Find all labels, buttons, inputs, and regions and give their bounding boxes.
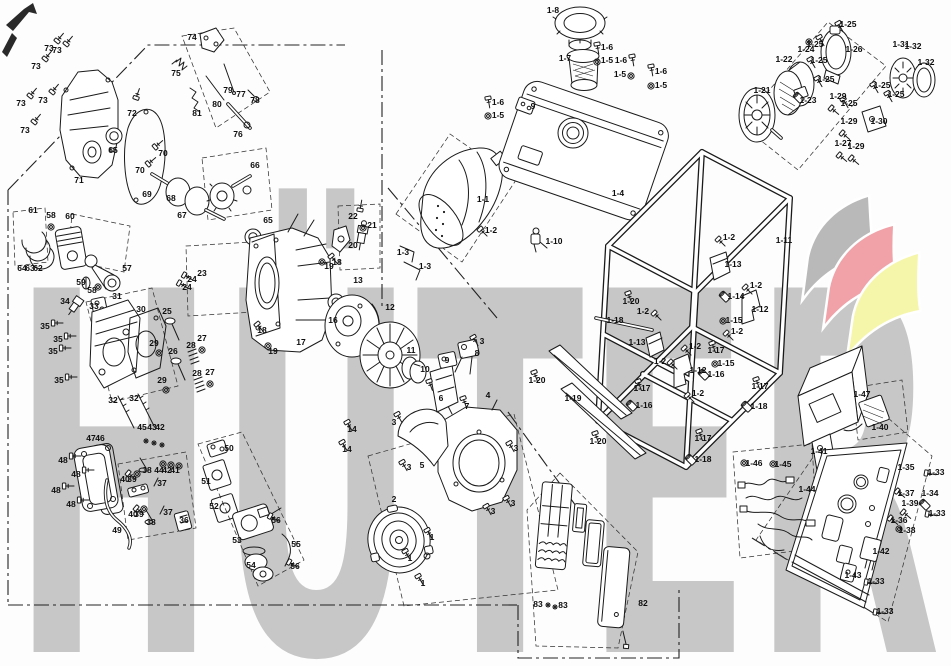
bolt-glyph <box>145 155 158 167</box>
part-label: 78 <box>250 95 260 105</box>
part-label: 1-5 <box>601 55 614 65</box>
bolt-glyph <box>836 152 849 164</box>
part-label: 73 <box>31 61 41 71</box>
bolt-glyph <box>31 112 43 125</box>
part-label: 3 <box>511 498 516 508</box>
part-label: 1-32 <box>917 57 934 67</box>
part-label: 1-42 <box>872 546 889 556</box>
part-label: 1-26 <box>845 44 862 54</box>
part-label: 59 <box>76 277 86 287</box>
part-label: 3 <box>480 336 485 346</box>
part-label: 35 <box>53 334 63 344</box>
part-label: 73 <box>20 125 30 135</box>
part-label: 8 <box>475 348 480 358</box>
part-label: 38 <box>142 465 152 475</box>
alternator-stator <box>774 62 814 115</box>
part-label: 1-30 <box>870 116 887 126</box>
part-label: 1-19 <box>564 393 581 403</box>
part-label: 79 <box>223 85 233 95</box>
part-label: 1-25 <box>806 39 823 49</box>
part-label: 54 <box>246 560 256 570</box>
part-label: 1-2 <box>689 341 702 351</box>
part-label: 1-25 <box>810 55 827 65</box>
part-label: 1-3 <box>419 261 432 271</box>
part-label: 48 <box>51 485 61 495</box>
part-label: 70 <box>158 148 168 158</box>
part-label: 11 <box>407 345 416 355</box>
part-label: 60 <box>65 211 75 221</box>
part-label: 1-32 <box>904 41 921 51</box>
part-label: 41 <box>170 465 180 475</box>
bolt-glyph <box>629 54 637 66</box>
part-label: 77 <box>236 89 246 99</box>
part-label: 42 <box>155 422 165 432</box>
part-label: 1-16 <box>707 369 724 379</box>
part-label: 1-2 <box>637 306 650 316</box>
part-label: 38 <box>146 517 156 527</box>
part-label: 83 <box>533 599 543 609</box>
bolt-glyph <box>828 105 841 117</box>
end-grille <box>913 63 935 97</box>
part-label: 6 <box>439 393 444 403</box>
part-label: 1-22 <box>775 54 792 64</box>
part-label: 1-45 <box>774 459 791 469</box>
part-label: 70 <box>135 165 145 175</box>
part-label: 1-5 <box>614 69 627 79</box>
part-label: 56 <box>290 561 300 571</box>
part-label: 34 <box>60 296 70 306</box>
filler-neck <box>567 50 599 91</box>
part-label: 1-38 <box>898 525 915 535</box>
part-label: 20 <box>348 240 358 250</box>
part-label: 46 <box>95 433 105 443</box>
part-label: 1-33 <box>928 508 945 518</box>
part-label: 1-6 <box>601 42 614 52</box>
float-bowl <box>253 567 273 581</box>
part-label: 1-5 <box>492 110 505 120</box>
part-label: 25 <box>162 306 172 316</box>
part-label: 1-36 <box>890 515 907 525</box>
part-label: 1-33 <box>876 606 893 616</box>
part-label: 16 <box>328 315 338 325</box>
part-label: 1-6 <box>492 97 505 107</box>
part-label: 3 <box>491 506 496 516</box>
part-label: 7 <box>465 401 470 411</box>
part-label: 28 <box>192 368 202 378</box>
part-label: 1-4 <box>612 188 625 198</box>
part-label: 1-43 <box>844 570 861 580</box>
part-label: 53 <box>232 535 242 545</box>
part-label: 1-5 <box>655 80 668 90</box>
part-label: 27 <box>205 367 215 377</box>
part-label: 1-46 <box>745 458 762 468</box>
part-label: 1-17 <box>707 345 724 355</box>
part-label: 71 <box>74 175 84 185</box>
part-label: 1-15 <box>717 358 734 368</box>
part-label: 28 <box>186 340 196 350</box>
part-label: 36 <box>179 515 189 525</box>
part-label: 80 <box>212 99 222 109</box>
part-label: 61 <box>28 205 38 215</box>
part-label: 1-2 <box>654 356 667 366</box>
part-label: 14 <box>342 444 352 454</box>
part-label: 1-41 <box>810 446 827 456</box>
part-label: 5 <box>420 460 425 470</box>
part-label: 72 <box>127 108 137 118</box>
part-label: 31 <box>112 291 122 301</box>
part-label: 1-17 <box>633 383 650 393</box>
part-label: 1-3 <box>397 247 410 257</box>
part-label: 83 <box>558 600 568 610</box>
part-label: 1-23 <box>799 95 816 105</box>
part-label: 1-18 <box>750 401 767 411</box>
part-label: 1-2 <box>692 388 705 398</box>
part-label: 1-13 <box>628 337 645 347</box>
part-label: 19 <box>268 346 278 356</box>
part-label: 45 <box>137 422 147 432</box>
part-label: 1-35 <box>897 462 914 472</box>
part-label: 1-11 <box>776 235 793 245</box>
part-label: 1-20 <box>528 375 545 385</box>
part-label: 1 <box>408 553 413 563</box>
part-label: 9 <box>531 101 536 111</box>
part-label: 39 <box>127 474 137 484</box>
part-label: 37 <box>157 478 167 488</box>
part-label: 1-44 <box>798 484 815 494</box>
part-label: 3 <box>392 417 397 427</box>
part-label: 68 <box>166 193 176 203</box>
part-label: 74 <box>187 32 197 42</box>
part-label: 1-37 <box>897 488 914 498</box>
part-label: 35 <box>48 346 58 356</box>
part-label: 1-20 <box>622 296 639 306</box>
bolt-glyph <box>848 155 861 167</box>
bolt-glyph <box>49 82 61 95</box>
part-label: 75 <box>171 68 181 78</box>
part-label: 1-2 <box>485 225 498 235</box>
part-label: 1-1 <box>477 194 490 204</box>
part-label: 3 <box>514 443 519 453</box>
bolt-glyph <box>133 88 143 101</box>
part-label: 1-47 <box>853 389 870 399</box>
part-label: 1-18 <box>694 454 711 464</box>
part-label: 1 <box>421 578 426 588</box>
part-label: 1-39 <box>901 498 918 508</box>
bolt-glyph <box>63 34 75 47</box>
part-label: 1-29 <box>847 141 864 151</box>
part-label: 1-8 <box>547 5 560 15</box>
part-label: 69 <box>142 189 152 199</box>
part-label: 52 <box>209 501 219 511</box>
part-label: 55 <box>291 539 301 549</box>
part-label: 1-25 <box>817 74 834 84</box>
part-label: 48 <box>71 469 81 479</box>
part-label: 1-20 <box>589 436 606 446</box>
part-label: 30 <box>136 304 146 314</box>
part-label: 17 <box>296 337 306 347</box>
part-label: 48 <box>58 455 68 465</box>
part-label: 65 <box>263 215 273 225</box>
part-label: 3 <box>407 462 412 472</box>
part-label: 1-15 <box>725 315 742 325</box>
part-label: 18 <box>257 325 267 335</box>
crankcase-cover <box>60 70 118 178</box>
part-label: 13 <box>353 275 363 285</box>
bolt-glyph <box>27 86 39 99</box>
fan-cover <box>438 400 517 511</box>
part-label: 1-17 <box>694 433 711 443</box>
part-label: 32 <box>108 395 118 405</box>
part-label: 33 <box>89 301 99 311</box>
part-label: 73 <box>16 98 26 108</box>
part-label: 48 <box>66 499 76 509</box>
part-label: 2 <box>392 494 397 504</box>
part-label: 1-2 <box>750 280 763 290</box>
part-label: 1-12 <box>689 365 706 375</box>
part-label: 51 <box>201 476 211 486</box>
part-label: 49 <box>112 525 122 535</box>
part-label: 65 <box>108 145 118 155</box>
part-label: 1 <box>430 532 435 542</box>
part-label: 1-6 <box>655 66 668 76</box>
part-label: 1-25 <box>887 89 904 99</box>
part-label: 1-14 <box>727 291 744 301</box>
part-label: 12 <box>385 302 395 312</box>
part-label: 10 <box>420 364 430 374</box>
part-label: 50 <box>224 443 234 453</box>
part-label: 19 <box>324 261 334 271</box>
part-label: 73 <box>38 95 48 105</box>
part-label: 1-16 <box>635 400 652 410</box>
exploded-parts-diagram: HÜTER <box>0 0 951 666</box>
part-label: 29 <box>149 338 159 348</box>
part-label: 1-18 <box>606 315 623 325</box>
part-label: 58 <box>46 210 56 220</box>
part-label: 1-2 <box>731 326 744 336</box>
part-label: 56 <box>271 515 281 525</box>
part-label: 1-2 <box>723 232 736 242</box>
part-label: 73 <box>52 45 62 55</box>
part-label: 37 <box>163 507 173 517</box>
part-label: 1-34 <box>921 488 938 498</box>
parts-diagram-page: HÜTER <box>0 0 951 666</box>
part-label: 1-6 <box>615 55 628 65</box>
part-label: 1-10 <box>545 236 562 246</box>
part-label: 23 <box>197 268 207 278</box>
part-label: 1-13 <box>724 259 741 269</box>
part-label: 29 <box>157 375 167 385</box>
part-label: 1-33 <box>867 576 884 586</box>
part-label: 76 <box>233 129 243 139</box>
part-label: 66 <box>250 160 260 170</box>
part-label: 27 <box>197 333 207 343</box>
part-label: 81 <box>192 108 202 118</box>
part-label: 1-21 <box>753 85 770 95</box>
part-label: 24 <box>182 282 192 292</box>
part-label: 26 <box>168 346 178 356</box>
part-label: 1-25 <box>840 98 857 108</box>
part-label: 1-12 <box>751 304 768 314</box>
part-label: 1-33 <box>927 467 944 477</box>
part-label: 9 <box>445 355 450 365</box>
part-label: 82 <box>638 598 648 608</box>
part-label: 22 <box>348 211 358 221</box>
part-label: 57 <box>122 263 132 273</box>
part-label: 1-7 <box>559 53 572 63</box>
part-label: 1-40 <box>871 422 888 432</box>
part-label: 1-29 <box>840 116 857 126</box>
part-label: 1-25 <box>839 19 856 29</box>
part-label: 21 <box>367 220 377 230</box>
part-label: 14 <box>347 424 357 434</box>
part-label: 32 <box>129 393 139 403</box>
part-label: 67 <box>177 210 187 220</box>
washer-glyph <box>627 72 636 81</box>
part-label: 4 <box>486 390 491 400</box>
up-left-arrow-icon <box>2 3 37 57</box>
part-label: 58 <box>87 285 97 295</box>
part-label: 35 <box>40 321 50 331</box>
part-label: 1-17 <box>751 381 768 391</box>
part-label: 62 <box>33 263 43 273</box>
part-label: 35 <box>54 375 64 385</box>
part-label: 39 <box>134 509 144 519</box>
